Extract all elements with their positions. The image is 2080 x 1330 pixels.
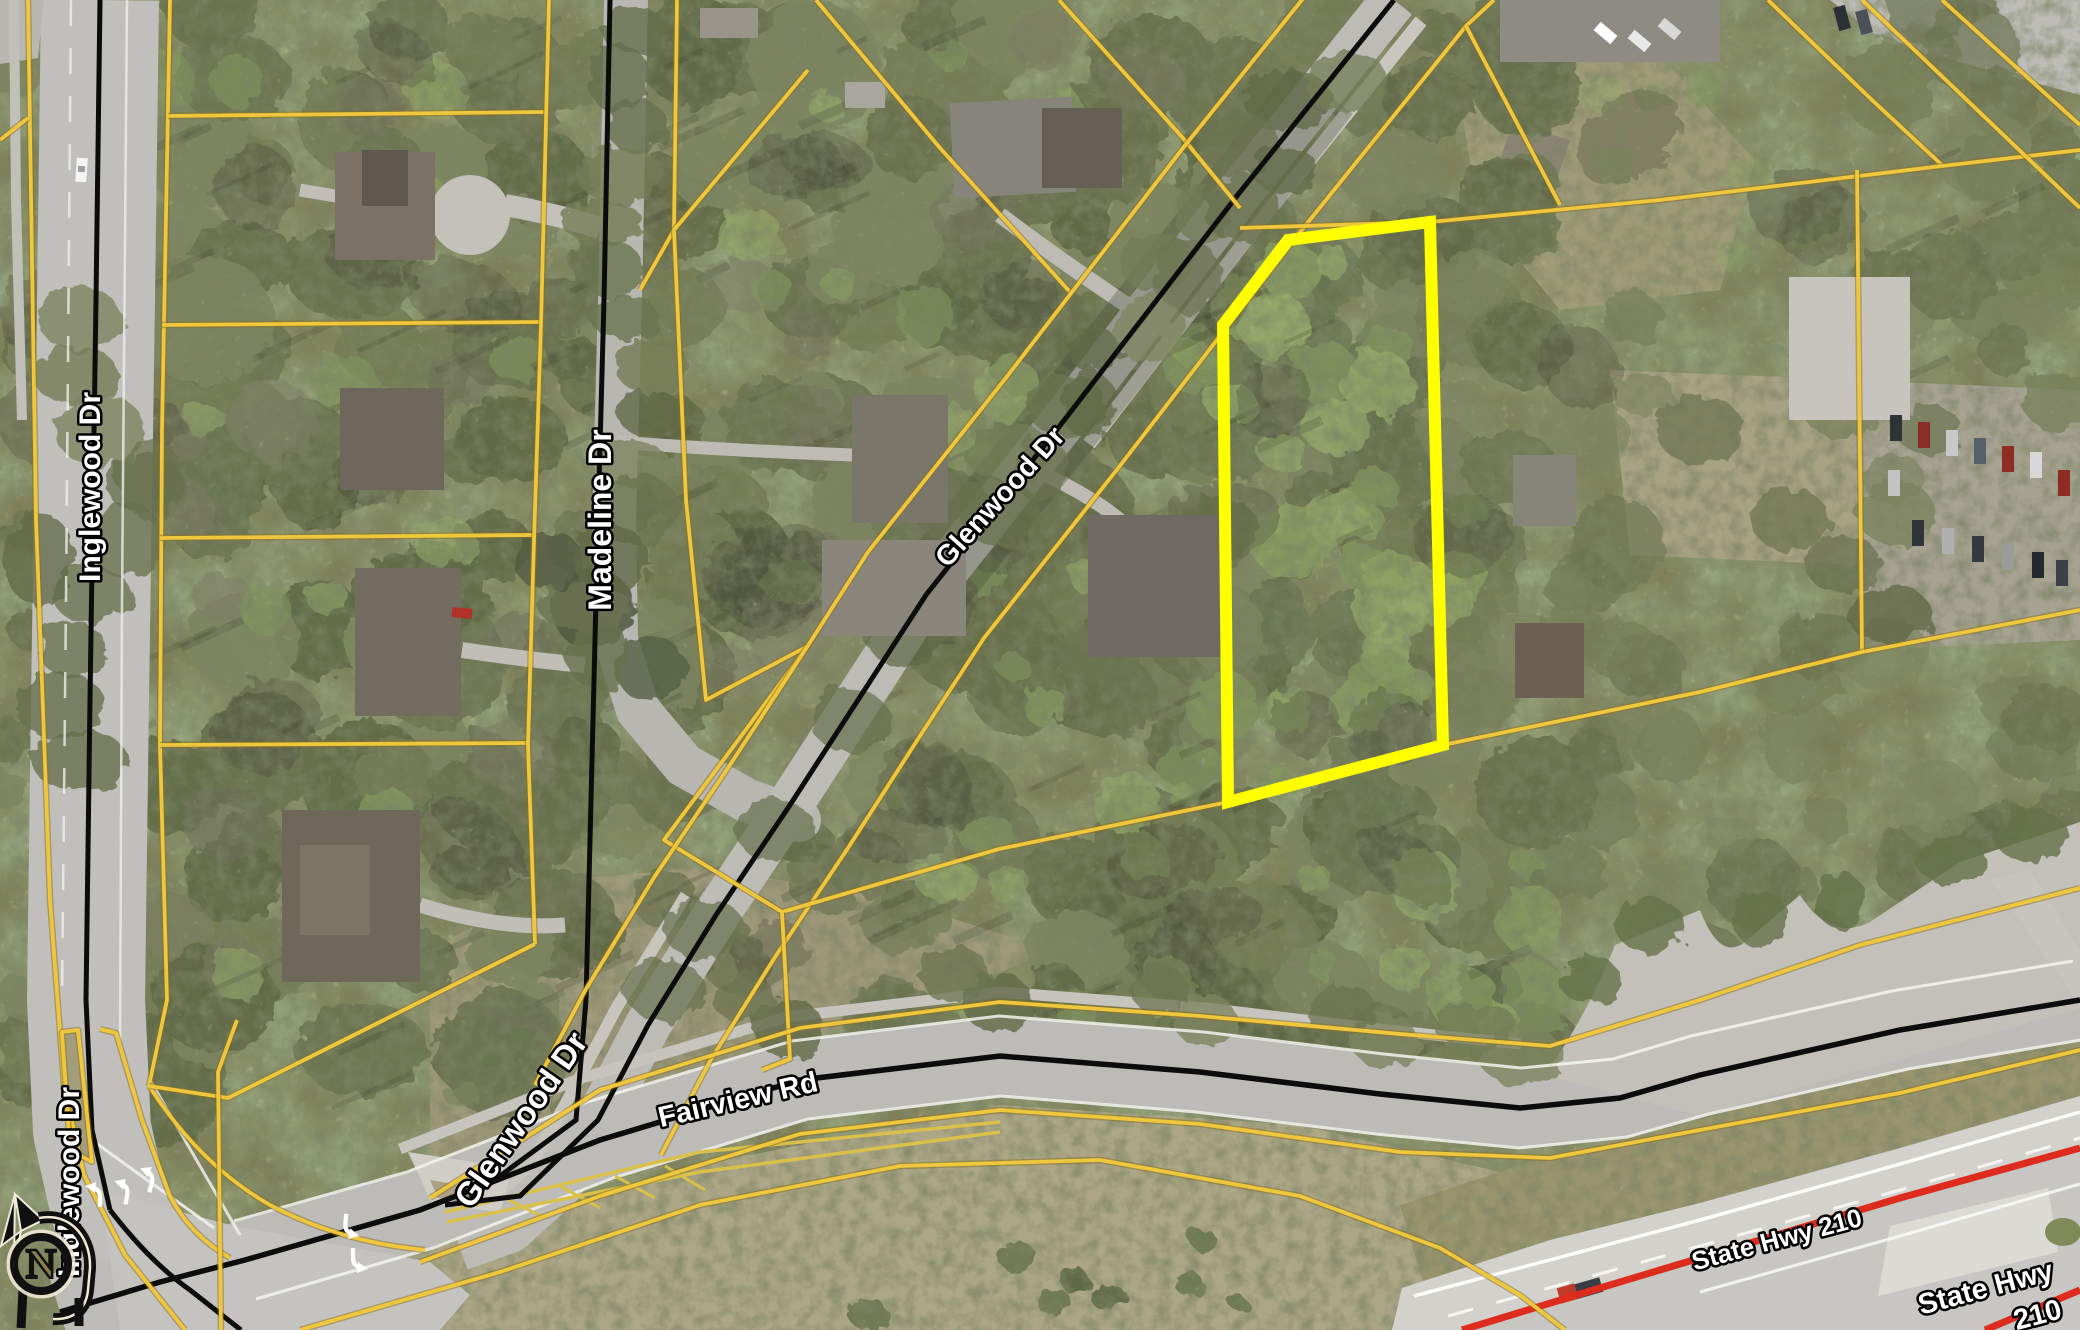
svg-text:Inglewood Dr: Inglewood Dr	[74, 392, 107, 582]
svg-text:N: N	[26, 1242, 56, 1288]
svg-text:Madeline Dr: Madeline Dr	[582, 429, 618, 610]
